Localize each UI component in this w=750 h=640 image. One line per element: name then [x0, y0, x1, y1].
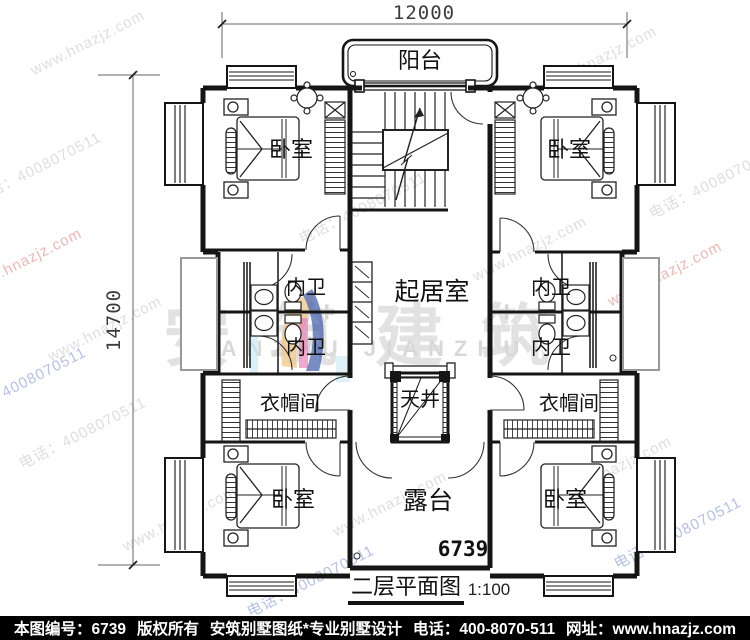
plan-number: 6739	[438, 537, 489, 561]
footer-phone: 电话：400-8070-511	[413, 617, 555, 639]
footer-studio: 安筑别墅图纸*专业别墅设计	[210, 617, 402, 639]
footer-copyright: 版权所有	[137, 617, 199, 639]
room-label-bedroom: 卧室	[547, 137, 591, 162]
footer-bar: 本图编号：6739 版权所有 安筑别墅图纸*专业别墅设计 电话：400-8070…	[0, 616, 750, 640]
dimension-width: 12000	[393, 2, 455, 24]
drawing-scale: 1:100	[468, 580, 511, 599]
footer-site: 网址：www.hnazjz.com	[566, 617, 736, 639]
room-label-bedroom: 卧室	[269, 137, 313, 162]
room-label-cloakroom: 衣帽间	[260, 392, 320, 415]
room-label-bath: 内卫	[286, 276, 326, 299]
sofa	[352, 262, 372, 344]
room-label-bedroom: 卧室	[271, 487, 315, 512]
room-label-cloakroom: 衣帽间	[539, 392, 599, 415]
dimension-height: 14700	[103, 289, 125, 351]
room-label-living: 起居室	[394, 278, 469, 306]
floorplan-page: www.hnazjz.com 电话：4008070511 电话：40080705…	[0, 0, 750, 640]
room-label-balcony: 阳台	[398, 48, 442, 73]
room-label-bedroom: 卧室	[543, 487, 587, 512]
title-underline	[348, 601, 464, 605]
room-label-bath: 内卫	[531, 336, 571, 359]
floorplan-drawing: 12000 14700	[0, 0, 750, 616]
room-label-lightwell: 天井	[400, 388, 440, 411]
room-label-terrace: 露台	[403, 487, 453, 515]
drawing-title: 二层平面图	[351, 574, 461, 599]
footer-number: 本图编号：6739	[14, 617, 126, 639]
room-label-bath: 内卫	[531, 276, 571, 299]
room-label-bath: 内卫	[286, 336, 326, 359]
staircase	[352, 92, 448, 207]
